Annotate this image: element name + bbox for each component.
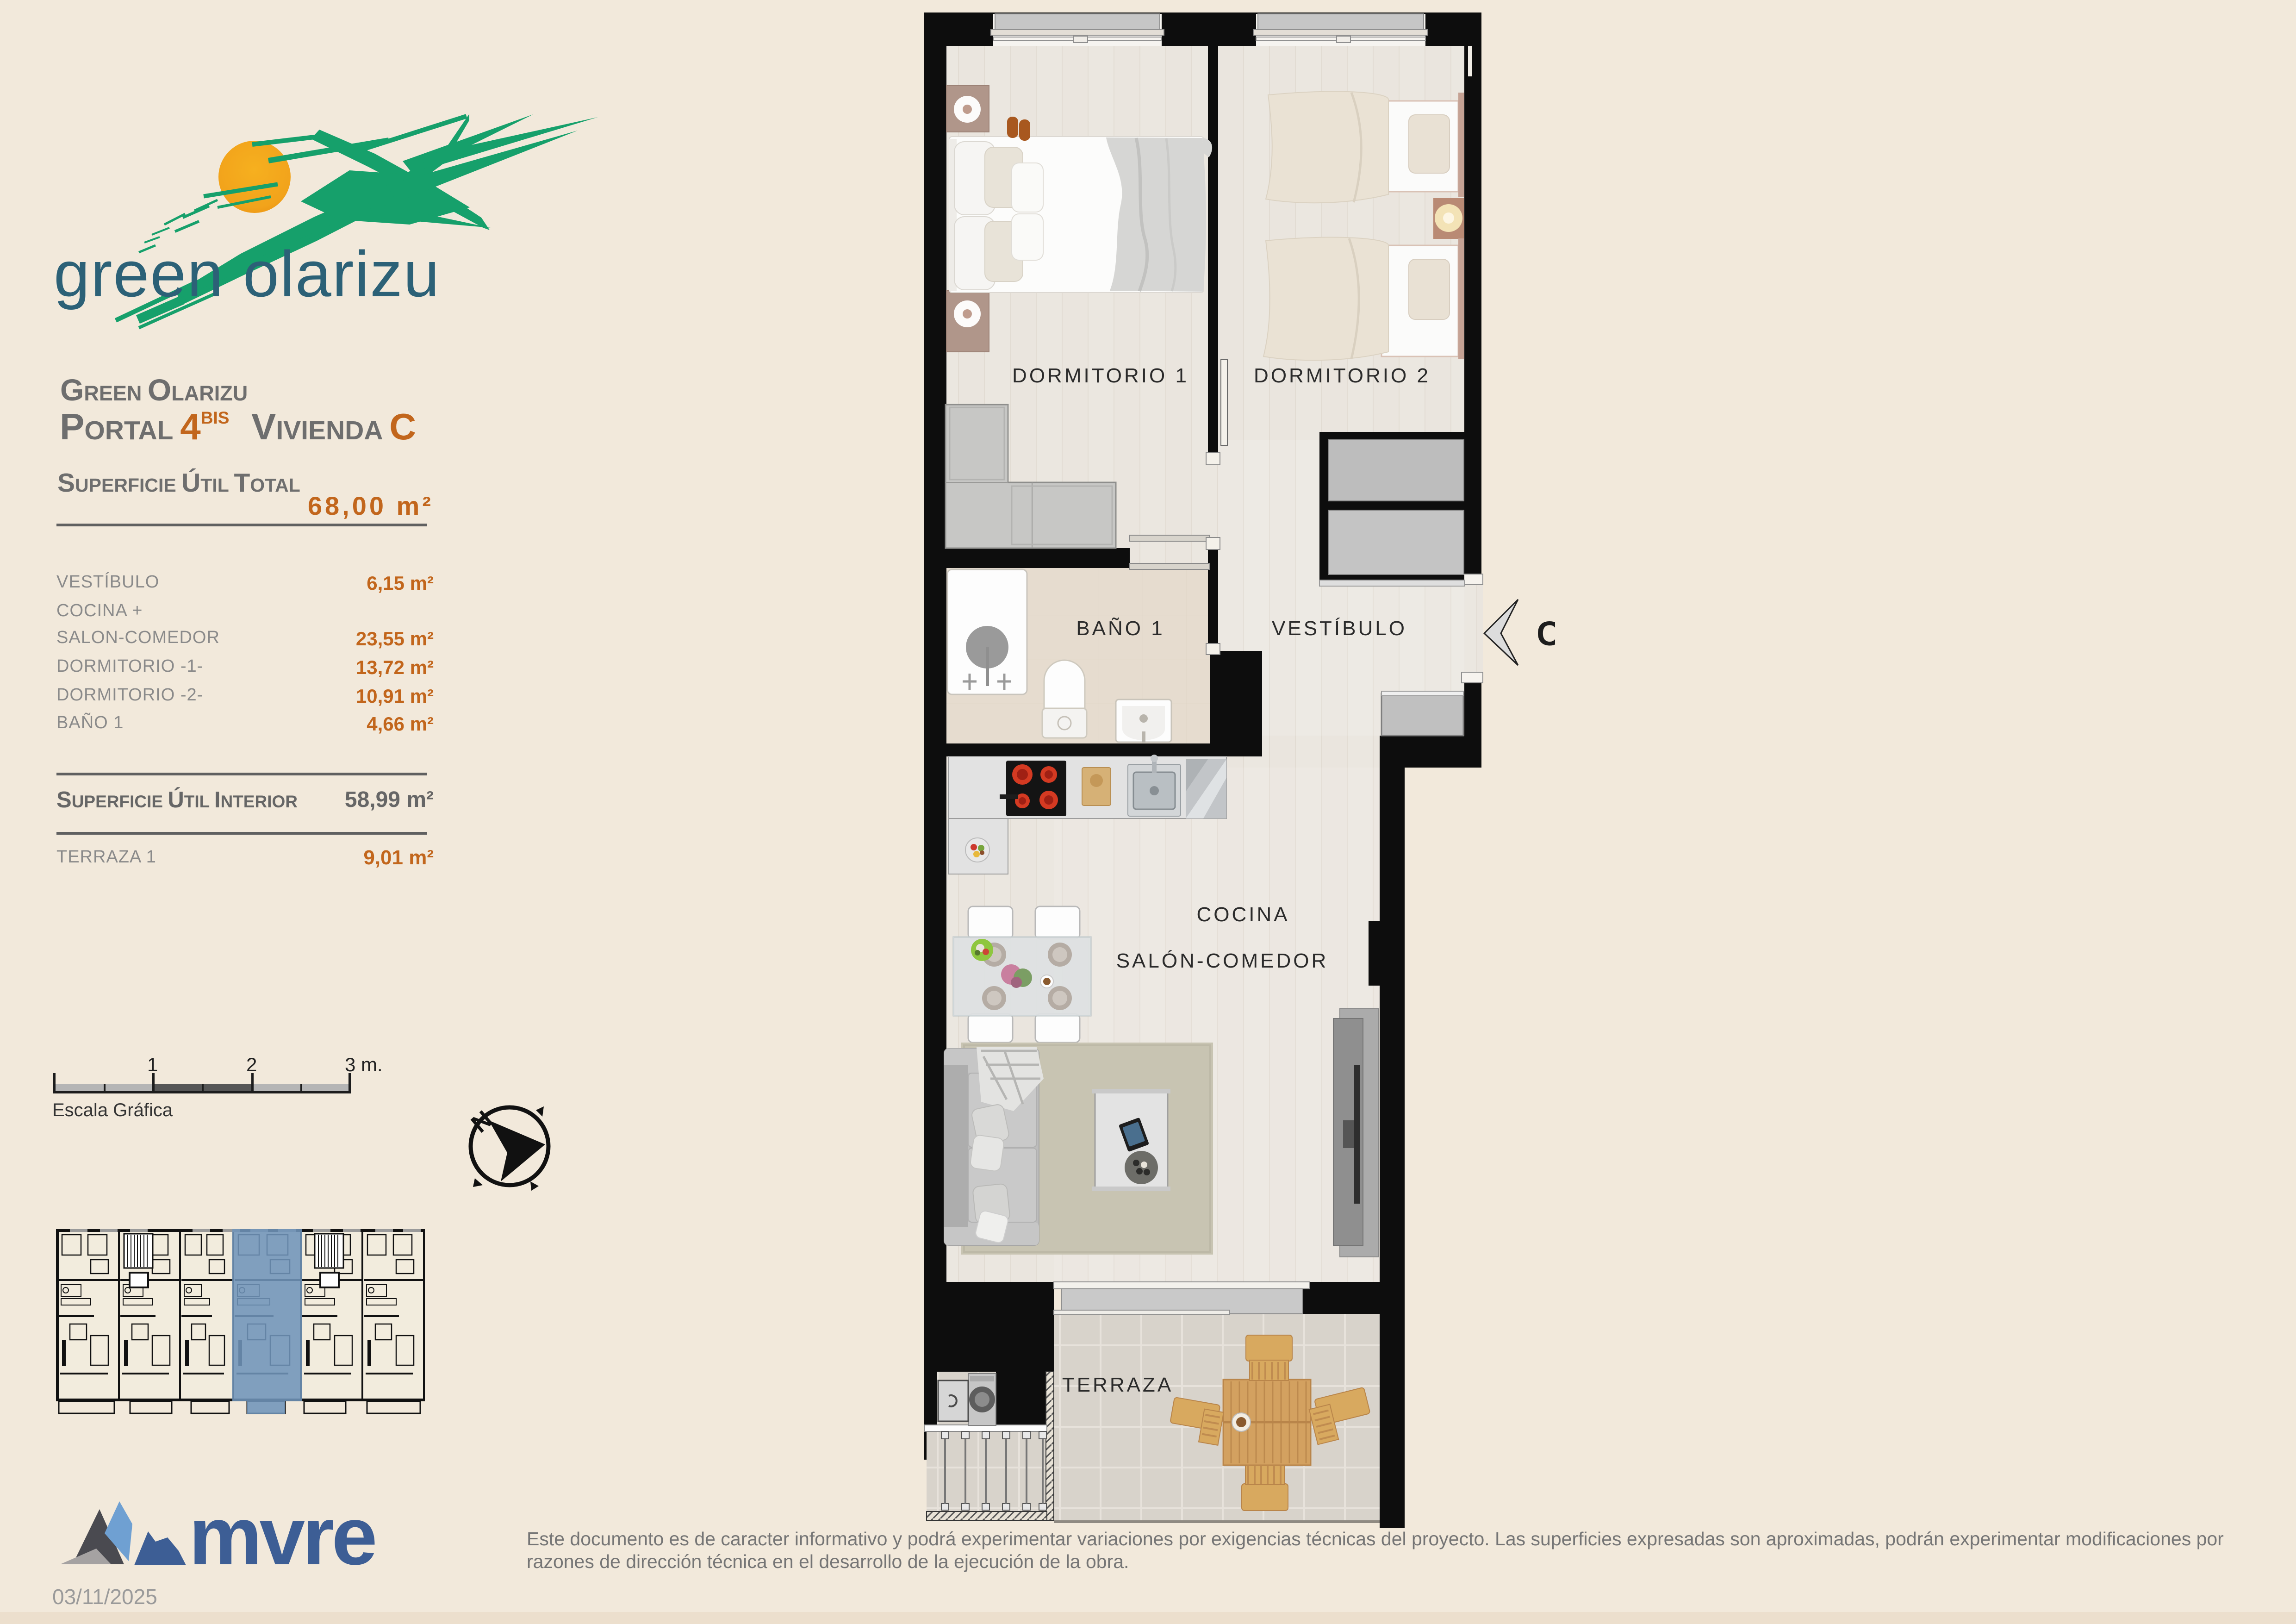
svg-text:mvre: mvre bbox=[189, 1495, 375, 1574]
svg-text:TERRAZA: TERRAZA bbox=[1062, 1374, 1173, 1396]
svg-text:DORMITORIO 1: DORMITORIO 1 bbox=[1012, 364, 1189, 387]
svg-text:C: C bbox=[1537, 614, 1555, 653]
svg-text:BAÑO 1: BAÑO 1 bbox=[1076, 617, 1164, 640]
svg-text:VESTÍBULO: VESTÍBULO bbox=[1272, 617, 1407, 640]
svg-text:COCINA: COCINA bbox=[1196, 903, 1289, 926]
svg-text:DORMITORIO 2: DORMITORIO 2 bbox=[1254, 364, 1431, 387]
svg-text:SALÓN-COMEDOR: SALÓN-COMEDOR bbox=[1116, 949, 1329, 972]
